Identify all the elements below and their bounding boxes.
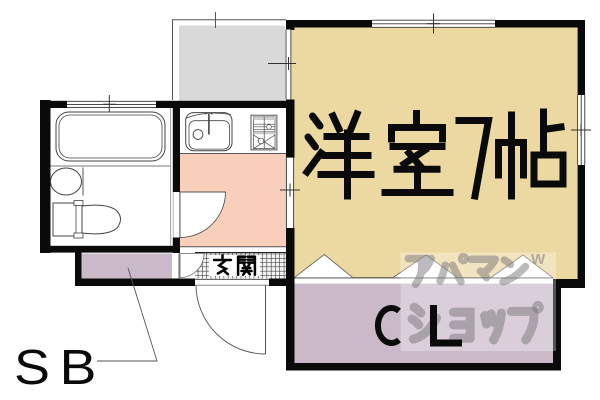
svg-text:S: S [14,339,50,394]
svg-text:B: B [60,341,97,395]
svg-text:W: W [531,251,546,268]
